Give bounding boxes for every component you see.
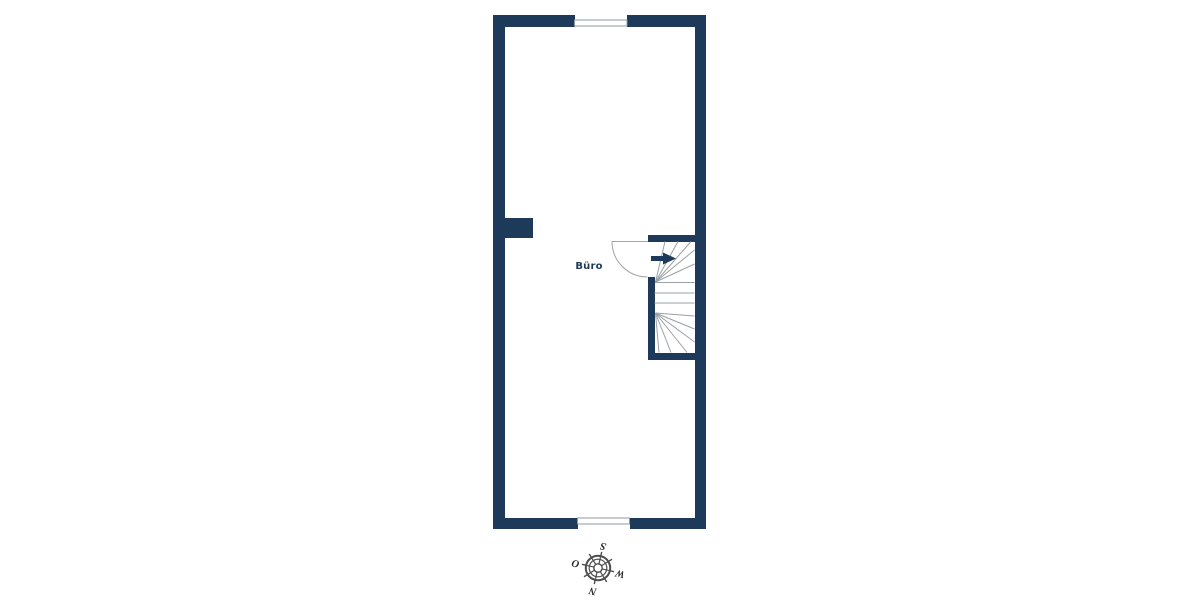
window-top-icon bbox=[575, 20, 628, 26]
compass-label-south: S bbox=[599, 540, 607, 552]
compass-label-north: N bbox=[587, 584, 598, 597]
compass-rose-icon: N O S W bbox=[565, 534, 631, 600]
compass-label-east: O bbox=[570, 557, 580, 570]
compass-label-west: W bbox=[614, 567, 626, 580]
floor-plan-canvas: Büro bbox=[0, 0, 1200, 600]
door-swing bbox=[612, 242, 648, 278]
door-arc bbox=[612, 242, 648, 278]
window-bottom-icon bbox=[578, 518, 630, 524]
plan-linework: N O S W bbox=[0, 0, 1200, 600]
